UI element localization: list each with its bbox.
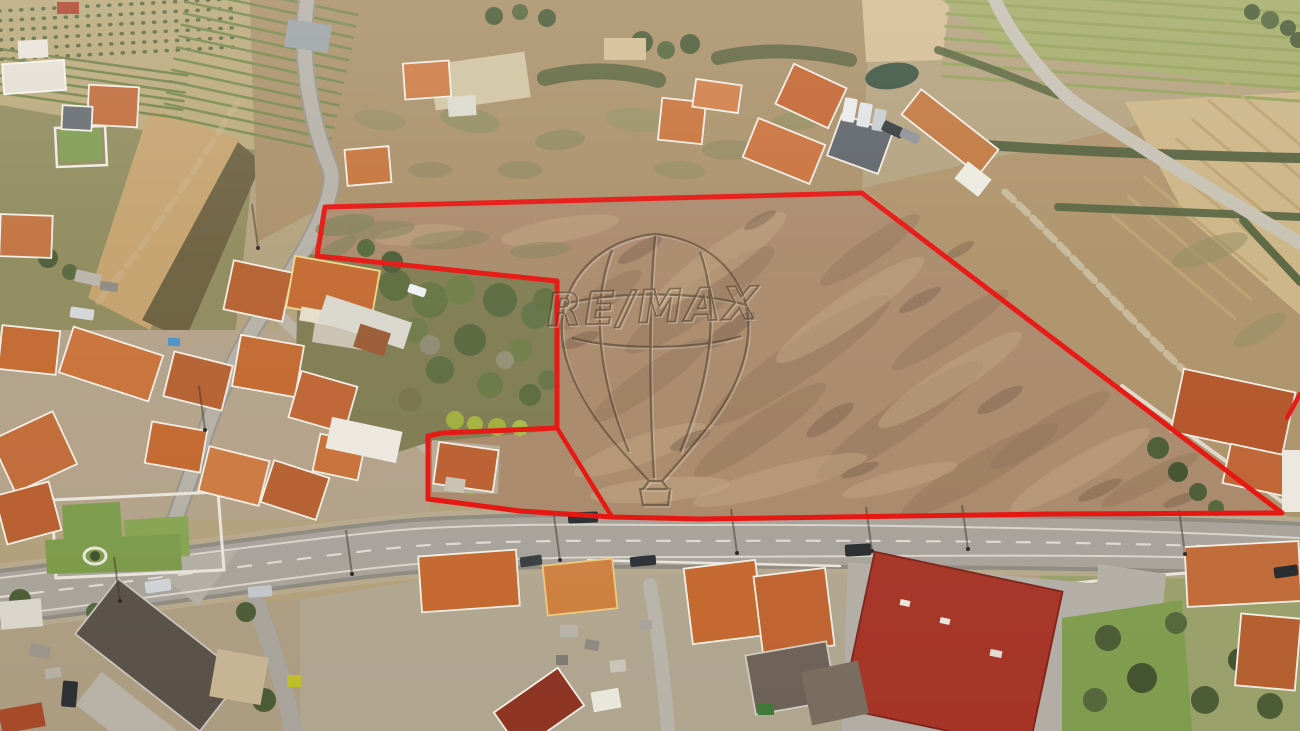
haze-overlay <box>0 0 1300 731</box>
aerial-property-photo: RE/MAXRE/MAX RE/MAX <box>0 0 1300 731</box>
aerial-scene-canvas: RE/MAXRE/MAX <box>0 0 1300 731</box>
